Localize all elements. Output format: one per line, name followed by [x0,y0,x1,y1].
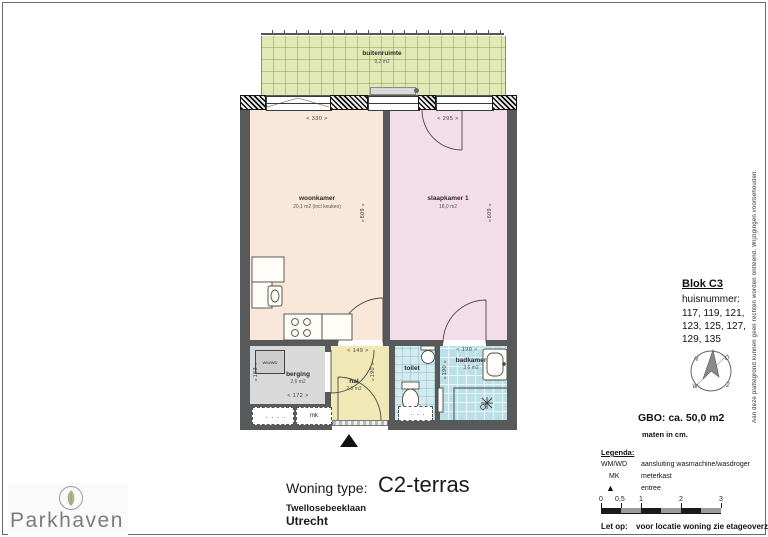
dim-value: 609 [487,208,493,218]
wall-left [240,95,250,430]
gbo-text: GBO: ca. 50,0 m2 [638,412,724,424]
meterkast-box: mk [296,407,332,425]
note-label: Let op: [601,522,628,531]
slaapkamer-label: slaapkamer 1 [427,195,468,202]
woning-type-value: C2-terras [378,472,470,498]
woning-type-label: Woning type: [286,480,367,496]
dim-badkamer-depth: ∧ 190 ∨ [442,360,448,380]
dim-woonkamer-depth: ∧ 609 ∨ [360,203,366,223]
room-hal [331,346,389,420]
legenda-title: Legenda: [601,448,634,457]
buitenruimte-label: buitenruimte [362,50,401,57]
legend-key-entree-icon: ▲ [606,483,615,493]
meterkast-label: mk [309,413,319,419]
window-woonkamer [266,96,332,111]
wall-right [507,95,517,430]
dim-arrow-up: ∧ [372,362,375,366]
wall-bottom-right [388,420,517,430]
dim-value: 190 [370,367,376,377]
compass-w: W [692,384,699,390]
dim-value: 153 [253,367,259,377]
toilet-niche-box [398,406,433,421]
dim-arrow-down: ∨ [444,376,447,380]
scale-tick-3: 3 [719,496,723,503]
slaapkamer-area: 18,0 m2 [439,204,457,210]
brand-text: Parkhaven [10,509,124,533]
dim-badkamer-width: < 190 > [456,347,477,353]
woonkamer-label: woonkamer [299,195,335,202]
info-panel: Blok C3 huisnummer: 117, 119, 121, 123, … [596,270,761,530]
dim-slaapkamer-width: < 295 > [437,116,458,122]
wm-wd-label: WM/WD [263,360,278,365]
entree-triangle-icon [340,434,358,447]
toilet-label: toilet [404,365,420,372]
legend-key-mk: MK [609,473,620,480]
parkhaven-logo: Parkhaven [8,483,128,535]
legend-value-wmwd: aansluiting wasmachine/wasdroger [641,461,750,468]
wall-berging-hal-bottom [325,392,331,404]
scale-tick-05: 0,5 [615,496,625,503]
buitenruimte-area: 9,2 m2 [374,59,389,65]
scale-bar-tick [601,503,602,508]
compass-o: O [725,356,730,362]
dim-arrow-up: ∧ [489,203,492,207]
compass-z: Z [725,383,730,389]
disclaimer-vertical-text: Aan deze plattegrond kunnen geen rechten… [752,28,762,423]
scale-bar-tick [721,503,722,508]
blok-title: Blok C3 [682,278,723,290]
wall-mid-vertical [383,110,390,346]
dim-arrow-up: ∧ [444,360,447,364]
title-block: Woning type: C2-terras Twellosebeeklaan … [286,470,546,530]
scale-bar-tick [621,503,622,508]
wall-hal-toilet [389,346,395,420]
masonry-hatch [418,95,436,110]
compass-n: N [694,357,699,363]
dim-slaapkamer-depth: ∧ 609 ∨ [487,203,493,223]
legend-value-entree: entree [641,485,661,492]
huisnummer-line: 123, 125, 127, [682,321,746,332]
badkamer-area: 3,6 m2 [463,365,478,371]
dim-value: 190 [442,365,448,375]
dim-berging-width: < 172 > [287,393,308,399]
wall-row-c [486,340,507,346]
huisnummer-line: 129, 135 [682,334,721,345]
badkamer-label: badkamer [456,357,487,364]
room-woonkamer [250,110,383,340]
entree-threshold [332,420,388,426]
leaf-icon [58,485,84,511]
masonry-hatch [240,95,266,110]
dim-arrow-down: ∨ [372,378,375,382]
window-slaapkamer [436,96,494,111]
scale-tick-1: 1 [639,496,643,503]
hal-label: hal [349,378,358,385]
huisnummer-line: 117, 119, 121, [682,308,744,319]
masonry-hatch [492,95,517,110]
legend-value-mk: meterkast [641,473,672,480]
compass-icon: N O Z W [686,346,736,396]
wm-wd-box: WM/WD [255,350,285,374]
dim-hal-width: < 149 > [347,348,368,354]
terrace-door [368,96,420,111]
dim-hal-depth: ∧ 190 ∨ [370,362,376,382]
scale-tick-0: 0 [599,496,603,503]
niche-box [252,407,294,425]
city-text: Utrecht [286,514,328,528]
street-text: Twellosebeeklaan [286,503,366,514]
terrace-door-dot [414,88,419,93]
dim-berging-depth: ∧ 153 ∨ [253,362,259,382]
hal-area: 2,8 m2 [346,386,361,392]
wall-toilet-badkamer [435,346,440,420]
scale-bar-tick [681,503,682,508]
berging-label: berging [286,371,310,378]
terrace-step [370,87,416,95]
berging-area: 2,6 m2 [290,379,305,385]
huisnummer-label: huisnummer: [682,294,740,305]
scale-bar-tick [641,503,642,508]
dim-arrow-down: ∨ [362,219,365,223]
dim-woonkamer-width: < 330 > [306,116,327,122]
terrace-fence-ticks [261,30,504,34]
dim-arrow-up: ∧ [362,203,365,207]
dim-arrow-down: ∨ [489,219,492,223]
note-text: voor locatie woning zie etageoverzicht. [636,522,768,531]
scale-bar [601,508,721,514]
woonkamer-area: 20,1 m2 (incl keuken) [293,204,341,210]
legend-key-wmwd: WM/WD [601,461,627,468]
dim-value: 609 [360,208,366,218]
compass-needle [703,350,719,379]
room-slaapkamer [390,110,507,340]
dim-arrow-down: ∨ [255,378,258,382]
scale-tick-2: 2 [679,496,683,503]
dim-arrow-up: ∧ [255,362,258,366]
wall-berging-hal-top [325,346,331,352]
masonry-hatch [330,95,368,110]
maten-text: maten in cm. [642,430,688,439]
